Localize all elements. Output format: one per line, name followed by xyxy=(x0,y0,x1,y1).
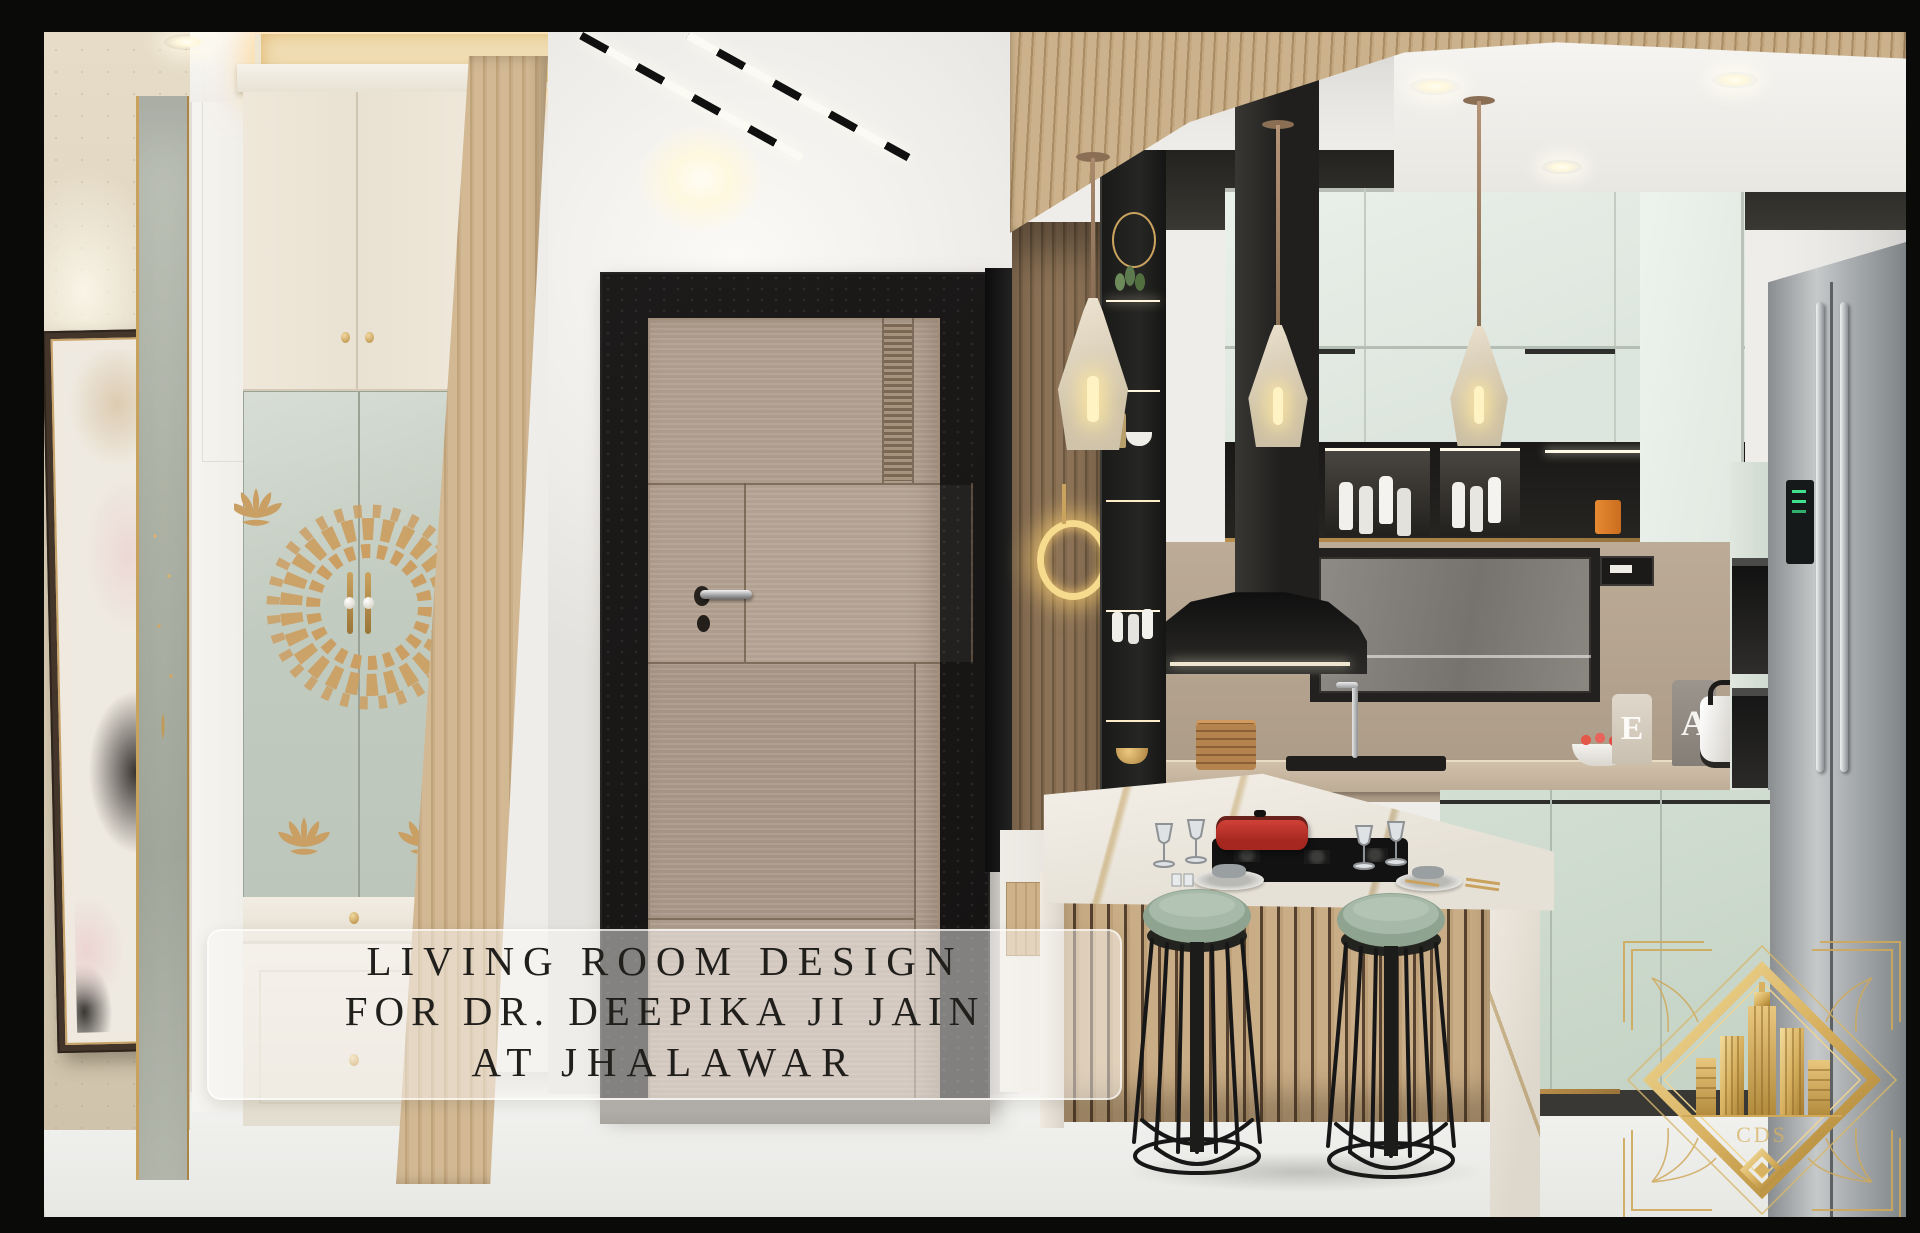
gold-knob xyxy=(341,332,350,343)
display-niche xyxy=(1440,448,1520,536)
pooja-cornice xyxy=(237,64,479,92)
display-niche xyxy=(1325,448,1430,536)
door-groove xyxy=(912,318,914,483)
lid-knob xyxy=(1254,810,1266,817)
napkin xyxy=(1212,864,1246,878)
door-gap xyxy=(356,92,358,389)
board-letter-e: E xyxy=(1621,710,1644,748)
switch-panel xyxy=(1600,556,1654,586)
corridor-mirror xyxy=(136,96,189,1180)
napkin xyxy=(1412,866,1444,879)
fridge-display-digits xyxy=(1792,490,1806,493)
lotus-motif xyxy=(274,812,334,862)
ring-sconce-light xyxy=(1037,520,1109,600)
fridge-handle xyxy=(1840,302,1848,772)
title-line-1: LIVING ROOM DESIGN xyxy=(320,936,1010,986)
faucet-spout xyxy=(1336,682,1358,688)
door-panel-shade xyxy=(746,485,971,662)
handle-slit xyxy=(1525,349,1615,354)
fridge-display xyxy=(1786,480,1814,564)
hood-lamp-line xyxy=(1170,662,1350,666)
built-in-microwave xyxy=(1732,688,1774,788)
pendant-bulb xyxy=(1474,386,1484,424)
switch-keys xyxy=(1610,565,1632,573)
pendant-light xyxy=(1442,96,1516,426)
door-groove xyxy=(971,483,973,662)
door-groove xyxy=(648,918,914,920)
pendant-rod xyxy=(1477,101,1481,329)
downlight xyxy=(1410,78,1460,95)
interior-scene: E A xyxy=(44,32,1906,1217)
ceramic-knob xyxy=(363,597,374,609)
pooja-upper-doors xyxy=(243,92,473,391)
pendant-shade xyxy=(1240,325,1316,447)
gold-knob xyxy=(349,912,359,924)
pendant-bulb xyxy=(1087,376,1099,422)
orange-tumbler xyxy=(1595,500,1621,534)
pendant-light xyxy=(1240,120,1316,450)
sconce-mount xyxy=(1062,484,1066,524)
downlight xyxy=(1712,72,1758,88)
studio-logo: CDS xyxy=(1612,930,1906,1217)
downlight xyxy=(1542,160,1582,174)
pendant-rod xyxy=(1276,125,1280,327)
wall-wash-glow xyxy=(636,124,766,234)
render-poster: E A xyxy=(0,0,1920,1233)
ceramic-knob xyxy=(344,597,355,609)
fridge-handle xyxy=(1816,302,1824,772)
title-line-3: AT JHALAWAR xyxy=(320,1037,1010,1088)
door-panel-shade xyxy=(648,664,914,918)
pendant-shade xyxy=(1048,298,1138,450)
shelf-jars xyxy=(1112,612,1123,642)
mirror-reflection-specks xyxy=(145,516,179,776)
door-keyhole xyxy=(697,615,710,632)
built-in-oven xyxy=(1732,558,1774,674)
tv-panel xyxy=(985,268,1013,872)
door-ribbed-strip xyxy=(884,324,912,481)
cabinet-gap xyxy=(1614,188,1616,442)
burner xyxy=(1234,848,1260,862)
gold-knob xyxy=(365,332,374,343)
stool-floor-shadow xyxy=(1124,1152,1484,1192)
pendant-light xyxy=(1048,152,1138,482)
red-cookware xyxy=(1216,816,1308,850)
pendant-rod xyxy=(1091,158,1095,300)
white-vases xyxy=(1452,482,1465,528)
burner xyxy=(1304,850,1330,864)
door-handle-lever xyxy=(700,590,752,599)
pendant-bulb xyxy=(1273,387,1283,425)
door-threshold xyxy=(600,1098,990,1124)
logo-monogram: CDS xyxy=(1736,1122,1788,1147)
title-overlay-text: LIVING ROOM DESIGN FOR DR. DEEPIKA JI JA… xyxy=(320,936,1010,1092)
logo-small-diamond-core xyxy=(1754,1162,1770,1178)
title-line-2: FOR DR. DEEPIKA JI JAIN xyxy=(320,986,1010,1037)
cabinet-gap xyxy=(1364,188,1366,442)
spotlight xyxy=(164,34,210,50)
letter-board-left: E xyxy=(1612,694,1652,764)
white-vases xyxy=(1339,482,1353,530)
